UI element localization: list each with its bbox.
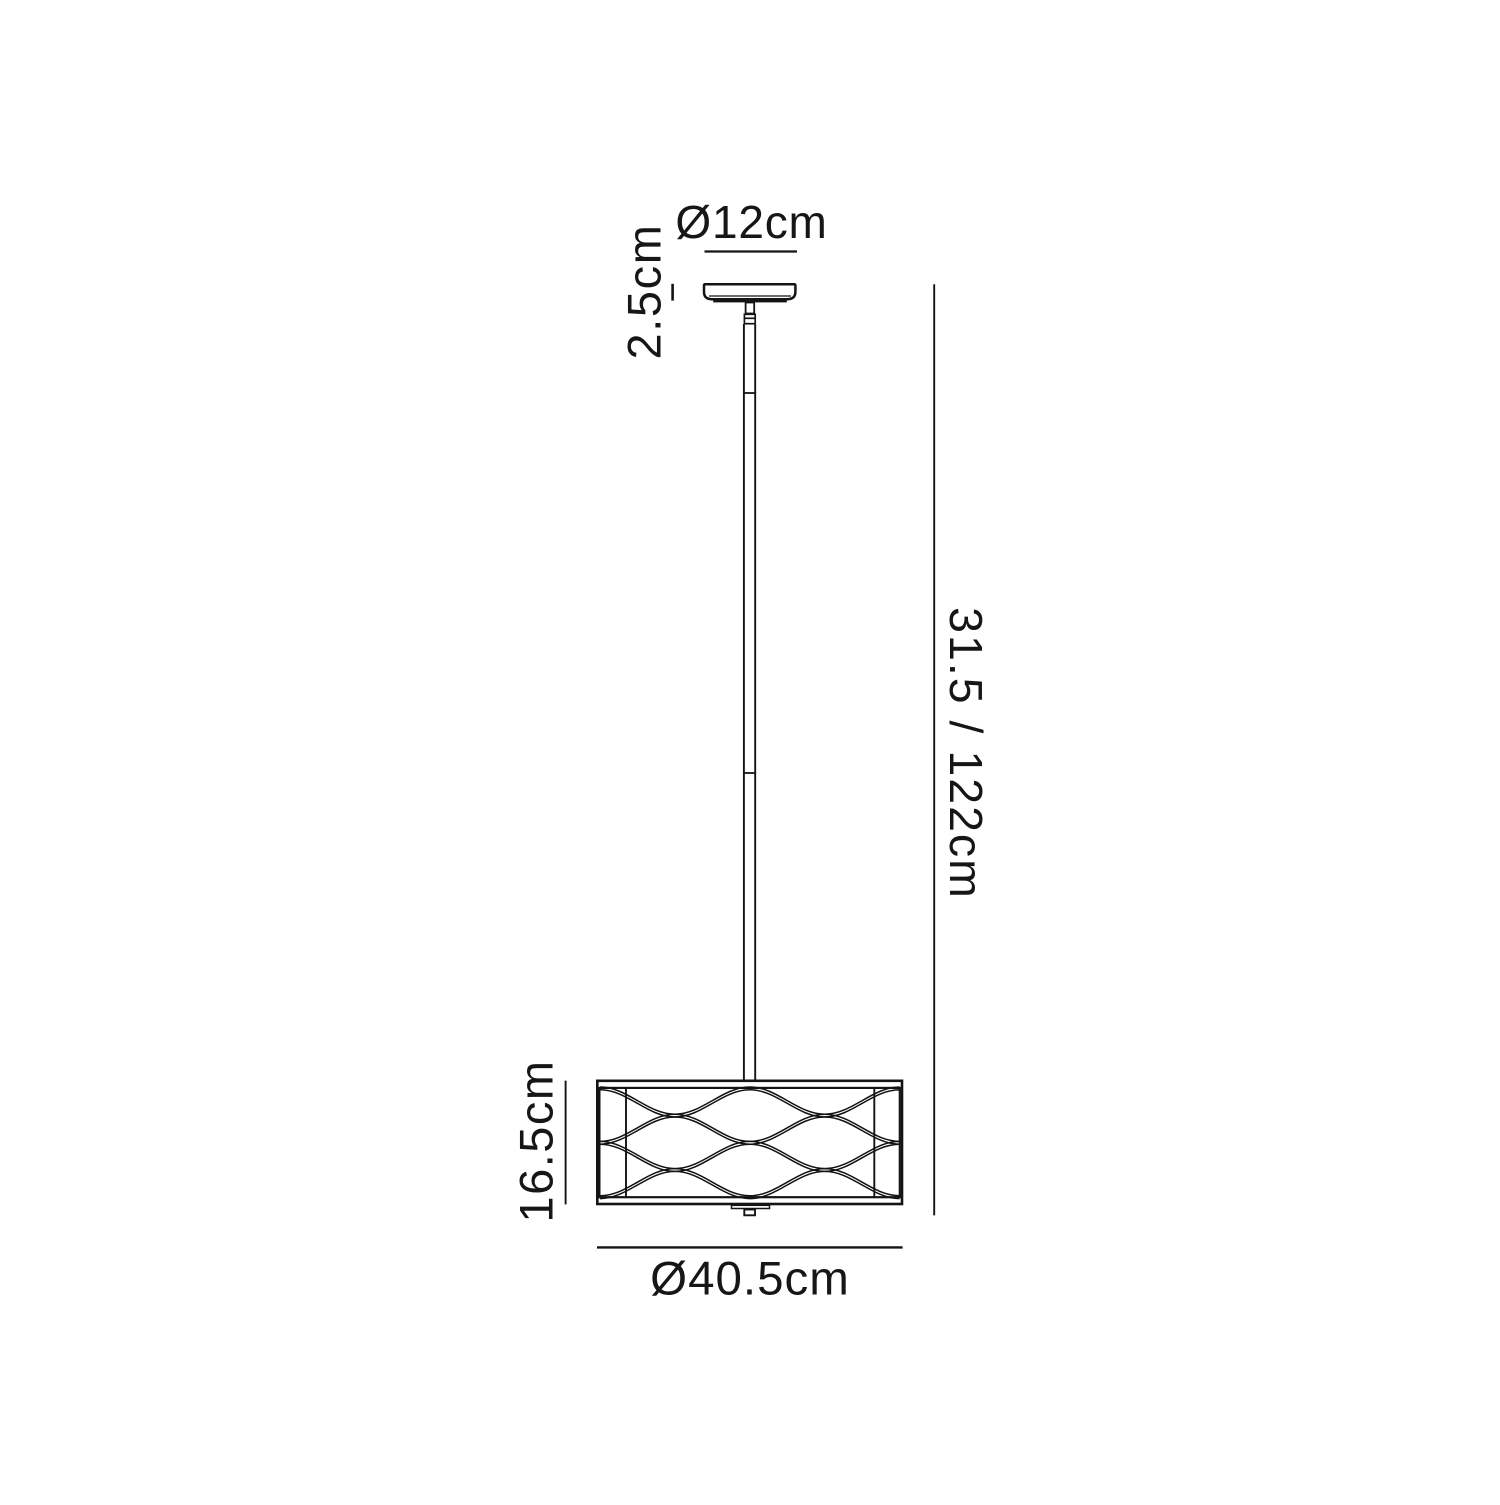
- svg-text:31.5 / 122cm: 31.5 / 122cm: [940, 607, 992, 900]
- svg-text:2.5cm: 2.5cm: [618, 224, 671, 360]
- svg-text:16.5cm: 16.5cm: [510, 1059, 563, 1222]
- svg-text:Ø40.5cm: Ø40.5cm: [650, 1253, 850, 1306]
- svg-text:Ø12cm: Ø12cm: [675, 196, 827, 248]
